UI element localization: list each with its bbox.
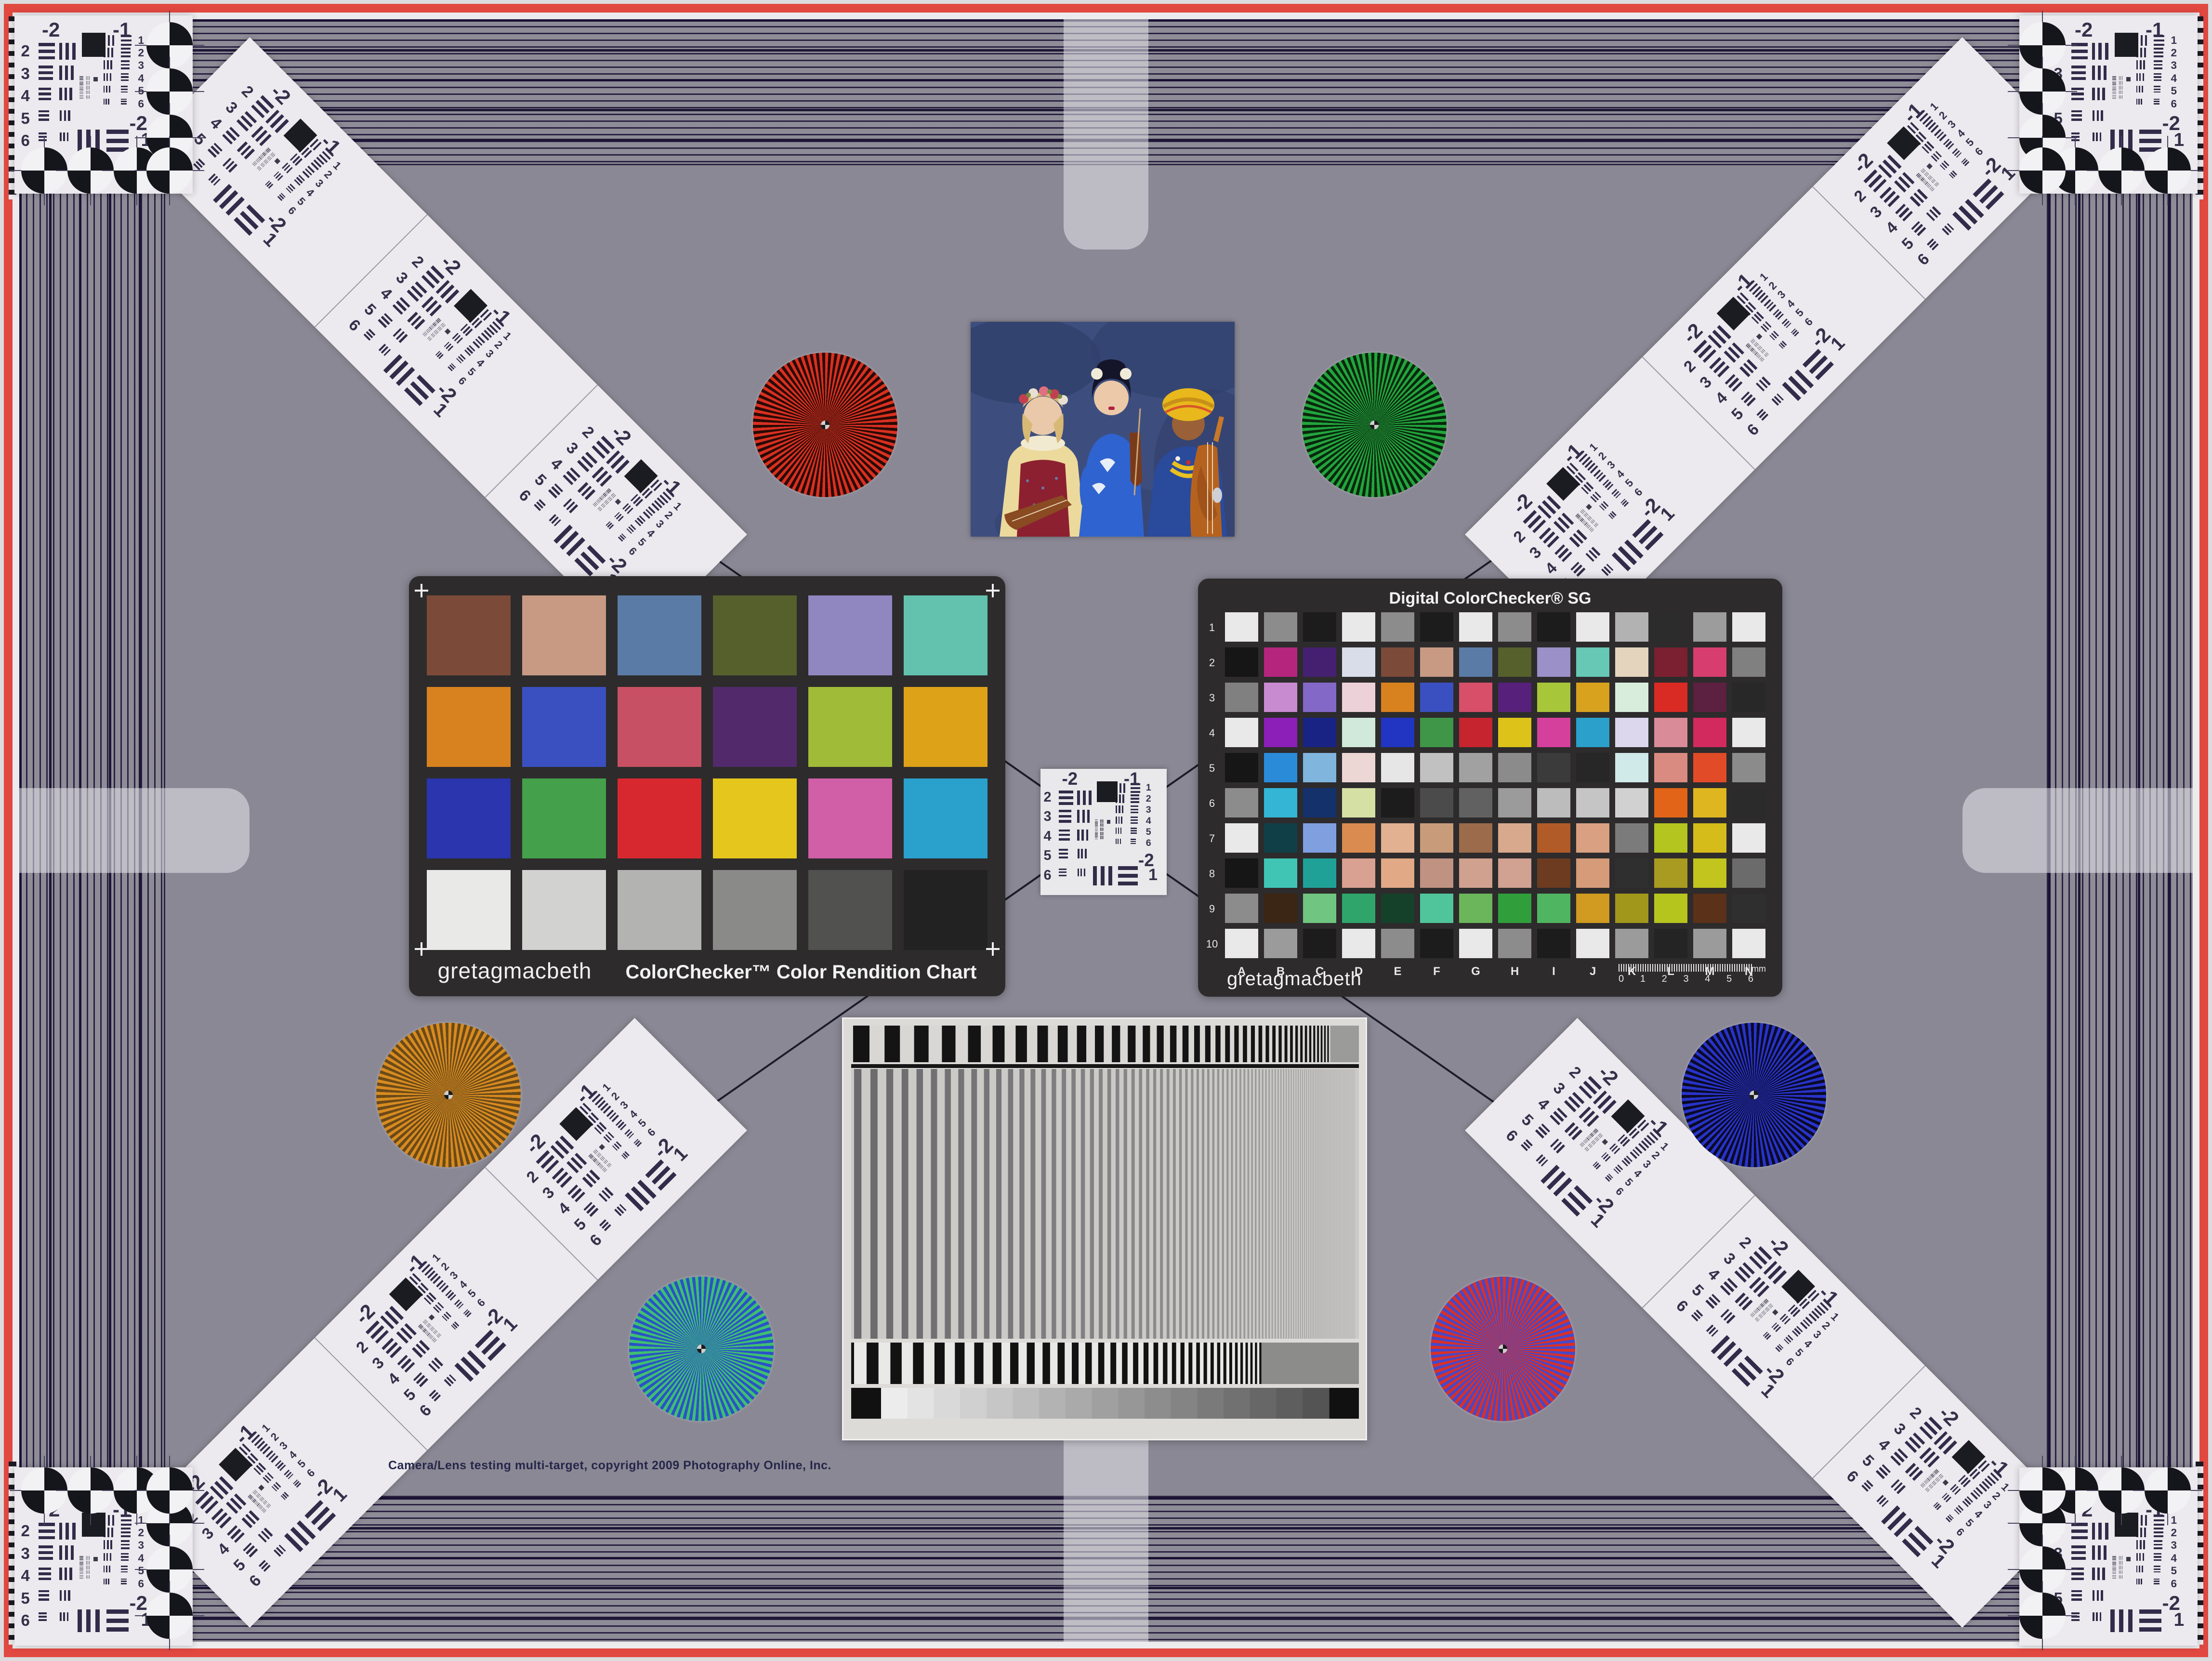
- sg-color-patch: [1420, 612, 1453, 642]
- micro-bar: [2119, 1561, 2120, 1565]
- vertical-bar-group: [271, 1482, 281, 1491]
- bar: [2104, 1545, 2107, 1560]
- micro-bar: [79, 1572, 83, 1573]
- horizontal-bar-group: [2154, 48, 2163, 57]
- bar: [121, 1531, 131, 1533]
- bar: [2154, 67, 2162, 69]
- micro-bar: [1095, 819, 1098, 820]
- vertical-bar-group: [1537, 495, 1561, 519]
- usaf-number: 1: [1659, 1141, 1671, 1153]
- horizontal-bar-group: [211, 1508, 232, 1529]
- bar: [1059, 820, 1072, 822]
- vertical-bar-group: [1950, 1484, 1961, 1495]
- bar: [39, 136, 47, 138]
- bar: [1059, 857, 1068, 858]
- usaf-number: 2: [1990, 1490, 2002, 1502]
- bar: [95, 1609, 100, 1632]
- usaf-number: 4: [2171, 73, 2177, 84]
- sg-color-patch: [1420, 683, 1453, 712]
- bar: [2097, 1590, 2099, 1601]
- micro-bar: [88, 86, 89, 90]
- micro-bar: [2112, 1569, 2116, 1569]
- horizontal-bar-group: [1902, 1526, 1934, 1557]
- bar: [2154, 1515, 2165, 1517]
- bar: [2154, 1519, 2165, 1522]
- bar: [2071, 1590, 2082, 1592]
- sg-color-patch: [1459, 647, 1492, 677]
- sg-ruler-number: 3: [1683, 974, 1688, 985]
- vertical-bar-group: [1116, 839, 1121, 844]
- bar: [1119, 794, 1121, 803]
- horizontal-bar-group: [259, 1560, 271, 1572]
- bar: [121, 76, 129, 78]
- star-hub: [697, 1345, 706, 1353]
- bar: [2145, 35, 2147, 46]
- sg-color-patch: [1537, 894, 1570, 923]
- sg-color-patch: [1732, 683, 1765, 712]
- vertical-bar-group: [1894, 172, 1915, 193]
- sg-ruler-unit: mm: [1751, 964, 1766, 974]
- horizontal-bar-group: [2139, 1609, 2162, 1632]
- bar: [2136, 60, 2138, 69]
- usaf-number: 3: [1697, 373, 1714, 391]
- bar: [2092, 88, 2094, 100]
- bar: [111, 48, 113, 57]
- horizontal-bar-group: [121, 48, 131, 57]
- bar: [39, 56, 55, 60]
- bar: [121, 44, 132, 46]
- bar: [1118, 874, 1138, 878]
- vertical-bar-group: [606, 521, 614, 529]
- sg-color-patch: [1576, 858, 1609, 888]
- usaf-black-square: [1097, 781, 1118, 802]
- bar: [121, 101, 127, 102]
- vertical-bar-group: [1612, 540, 1644, 571]
- bar: [2140, 60, 2142, 69]
- usaf-number: 4: [1542, 559, 1559, 577]
- sg-color-patch: [1420, 894, 1453, 923]
- horizontal-bar-group: [1550, 1107, 1567, 1125]
- bar: [66, 43, 69, 60]
- star-hub: [821, 421, 829, 429]
- micro-bar: [89, 86, 90, 90]
- bar: [1093, 866, 1097, 886]
- horizontal-bar-group: [363, 329, 375, 341]
- navy-star: [1682, 1023, 1826, 1167]
- sg-color-patch: [1342, 858, 1375, 888]
- fiducial-circle: [2145, 1467, 2191, 1514]
- corner-card-pattern: -2-123456123456-21: [2050, 18, 2195, 163]
- usaf-number: 6: [1844, 1467, 1861, 1485]
- micro-bar: [2112, 97, 2116, 98]
- vertical-bar-group: [2136, 1566, 2143, 1572]
- micro-bar: [1100, 836, 1101, 839]
- bar: [121, 1571, 128, 1573]
- micro-bar: [89, 1556, 90, 1560]
- usaf-resolution-pattern: -2-123456123456-21: [17, 1498, 162, 1643]
- usaf-number: 6: [1803, 316, 1815, 328]
- horizontal-bar-group: [1803, 349, 1834, 381]
- usaf-number: 6: [1044, 869, 1052, 883]
- micro-square: [93, 77, 98, 81]
- usaf-resolution-pattern: -2-123456123456-21: [17, 18, 162, 163]
- horizontal-bar-group: [454, 1299, 463, 1309]
- usaf-number: 3: [1551, 1079, 1568, 1096]
- sg-color-patch: [1225, 718, 1258, 747]
- bar: [2071, 114, 2082, 116]
- usaf-number: 3: [21, 66, 30, 81]
- bar: [2154, 99, 2159, 100]
- micro-bar: [79, 1566, 83, 1567]
- bar: [1131, 817, 1137, 818]
- vertical-bar-group: [1536, 1154, 1548, 1166]
- usaf-number: 6: [1914, 250, 1932, 268]
- bar: [1131, 841, 1136, 842]
- horizontal-bar-group: [1911, 221, 1926, 236]
- horizontal-bar-group: [1876, 1464, 1891, 1479]
- horizontal-bar-group: [266, 1450, 278, 1463]
- horizontal-bar-group: [1521, 1139, 1533, 1151]
- sg-color-patch: [1498, 683, 1531, 712]
- vertical-bar-group: [1593, 1090, 1617, 1114]
- bar: [2104, 66, 2107, 80]
- micro-square: [445, 328, 451, 334]
- vertical-bar-group: [1739, 359, 1757, 377]
- micro-bar: [79, 1573, 83, 1574]
- sg-color-patch: [1264, 753, 1297, 782]
- vertical-bar-group: [1590, 491, 1601, 502]
- classic-brand: gretagmacbeth: [438, 958, 592, 984]
- grayscale-step-wedge: [851, 1388, 1359, 1419]
- horizontal-bar-group: [121, 86, 128, 92]
- sg-ruler-number: 5: [1726, 974, 1732, 985]
- sg-color-patch: [1732, 929, 1765, 958]
- micro-bar: [79, 1567, 83, 1568]
- horizontal-bar-group: [2154, 1579, 2159, 1584]
- bar: [121, 1559, 129, 1561]
- bar: [2154, 101, 2159, 102]
- bar: [39, 1594, 49, 1596]
- sg-color-patch: [1654, 858, 1687, 888]
- sg-color-patch: [1420, 823, 1453, 853]
- bar: [1131, 822, 1137, 824]
- bar: [2154, 92, 2160, 93]
- sg-row-label: 9: [1205, 903, 1219, 915]
- micro-bar: [1095, 822, 1098, 822]
- micro-bar: [1095, 833, 1098, 833]
- bar: [2143, 1540, 2145, 1549]
- micro-bar: [2120, 81, 2121, 85]
- bar: [106, 1553, 108, 1561]
- bar: [1122, 794, 1124, 803]
- vertical-bar-group: [210, 1476, 233, 1500]
- bar: [2071, 1594, 2082, 1596]
- micro-bar: [79, 86, 83, 87]
- sg-color-patch: [1576, 753, 1609, 782]
- vertical-bar-group: [1550, 1138, 1565, 1153]
- sg-row-label: 5: [1205, 762, 1219, 775]
- bar: [1116, 805, 1117, 813]
- sg-color-patch: [1576, 647, 1609, 677]
- frequency-sweep-chart: [842, 1017, 1367, 1440]
- bar: [2154, 1559, 2161, 1561]
- usaf-number: 4: [1146, 817, 1151, 826]
- bar: [65, 1568, 67, 1580]
- horizontal-bar-group: [2071, 110, 2082, 121]
- bar: [1120, 839, 1121, 844]
- micro-bar: [86, 76, 87, 80]
- horizontal-bar-group: [1620, 499, 1629, 507]
- vertical-bar-group: [598, 1187, 613, 1202]
- usaf-number: 3: [2171, 1540, 2177, 1551]
- bar: [2092, 1545, 2095, 1560]
- horizontal-bar-group: [1535, 1123, 1550, 1138]
- usaf-number: 6: [2171, 99, 2177, 110]
- sg-color-patch: [1498, 858, 1531, 888]
- horizontal-bar-group: [1131, 794, 1139, 803]
- bar: [121, 1528, 131, 1529]
- micro-bar: [2119, 1575, 2120, 1579]
- bar: [71, 66, 74, 80]
- usaf-number: 2: [2171, 48, 2177, 59]
- usaf-number: 5: [1793, 1347, 1805, 1359]
- usaf-number: 1: [1146, 783, 1151, 793]
- micro-bar: [1102, 828, 1102, 831]
- horizontal-bar-group: [121, 1579, 127, 1584]
- bar: [2154, 1566, 2160, 1567]
- horizontal-bar-group: [121, 1515, 132, 1526]
- divider-line: [851, 1064, 1359, 1068]
- usaf-label-bottom-one: 1: [430, 400, 451, 421]
- micro-bar: [2112, 1561, 2116, 1562]
- bar: [1116, 839, 1117, 844]
- micro-bar: [86, 1570, 87, 1574]
- micro-square: [2126, 77, 2131, 81]
- micro-bar: [79, 1556, 83, 1557]
- sg-color-patch: [1381, 647, 1414, 677]
- usaf-label-bottom-one: 1: [1998, 163, 2018, 184]
- vertical-bar-group: [1601, 1152, 1610, 1161]
- horizontal-bar-group: [121, 99, 127, 105]
- horizontal-bar-group: [1943, 139, 1954, 150]
- vertical-bar-group: [396, 1323, 417, 1344]
- micro-bar: [1103, 836, 1104, 839]
- micro-bar: [79, 1575, 83, 1576]
- micro-bar: [2112, 1577, 2116, 1578]
- vertical-bar-group: [1941, 1493, 1951, 1503]
- bar: [2144, 48, 2146, 57]
- usaf-number: 3: [223, 98, 240, 116]
- color-patch: [904, 870, 987, 950]
- horizontal-bar-group: [456, 354, 465, 363]
- horizontal-bar-group: [1961, 158, 1970, 167]
- bar: [64, 1590, 66, 1601]
- vertical-bar-group: [594, 1122, 606, 1134]
- bar: [2097, 1568, 2100, 1580]
- micro-bar: [2112, 1578, 2116, 1579]
- sg-color-patch: [1381, 858, 1414, 888]
- horizontal-bar-group: [606, 1110, 619, 1122]
- sg-color-patch: [1420, 753, 1453, 782]
- horizontal-bar-group: [563, 467, 580, 485]
- sg-column-label: H: [1498, 965, 1531, 978]
- sg-color-patch: [1615, 718, 1648, 747]
- vertical-bar-group: [1942, 223, 1954, 235]
- sg-row-label: 10: [1205, 938, 1219, 950]
- sg-color-patch: [1576, 823, 1609, 853]
- sg-column-label: I: [1537, 965, 1570, 978]
- bar: [2154, 1579, 2159, 1580]
- micro-bar: [88, 76, 89, 80]
- sg-color-patch: [1693, 683, 1726, 712]
- bar: [2154, 86, 2160, 87]
- micro-bar: [2112, 1556, 2116, 1557]
- vertical-bar-group: [2110, 1609, 2133, 1632]
- bar: [1119, 805, 1120, 813]
- horizontal-bar-group: [121, 1553, 129, 1561]
- vertical-bar-group: [104, 1553, 111, 1561]
- usaf-number: 4: [1712, 389, 1730, 407]
- micro-bar: [2120, 1566, 2121, 1569]
- vertical-bar-group: [1779, 1313, 1791, 1324]
- bar: [2136, 1540, 2138, 1549]
- horizontal-bar-group: [1895, 204, 1913, 222]
- green-star: [1302, 353, 1447, 497]
- vertical-bar-group: [1599, 501, 1608, 511]
- micro-bar: [86, 86, 87, 90]
- sg-color-patch: [1537, 683, 1570, 712]
- fiducial-circle: [2019, 1467, 2066, 1514]
- bar: [2154, 52, 2163, 53]
- sg-color-patch: [1693, 929, 1726, 958]
- bar: [39, 98, 51, 100]
- horizontal-bar-group: [106, 130, 129, 152]
- vertical-bar-group: [1077, 810, 1090, 823]
- sg-color-patch: [1303, 753, 1336, 782]
- sg-color-patch: [1342, 929, 1375, 958]
- usaf-number: 1: [138, 35, 145, 46]
- sg-ruler-numbers: 0123456: [1619, 974, 1753, 985]
- bottom-bar-sweep: [851, 1343, 1359, 1384]
- sg-color-patch: [1732, 823, 1765, 853]
- bar: [39, 114, 49, 116]
- bar: [1131, 819, 1137, 821]
- horizontal-bar-group: [121, 1528, 131, 1537]
- vertical-bar-group: [1881, 1505, 1913, 1537]
- top-bar-sweep: [851, 1026, 1359, 1062]
- horizontal-bar-group: [1059, 810, 1072, 823]
- sg-ruler-number: 1: [1640, 974, 1646, 985]
- micro-bar: [2112, 89, 2116, 90]
- usaf-number: 3: [394, 269, 411, 286]
- usaf-number: 5: [362, 301, 379, 318]
- bar: [2154, 1581, 2159, 1582]
- horizontal-bar-group: [643, 506, 655, 519]
- vertical-bar-group: [1934, 1431, 1957, 1455]
- vertical-bar-group: [1618, 1134, 1630, 1147]
- usaf-resolution-pattern: -2-123456123456-21: [1040, 769, 1167, 895]
- sg-color-patch: [1264, 612, 1297, 642]
- color-patch: [522, 595, 606, 675]
- usaf-number: 5: [1519, 1111, 1537, 1128]
- vertical-bar-group: [1931, 151, 1942, 162]
- vertical-bar-group: [444, 342, 453, 351]
- bar: [1059, 810, 1072, 812]
- micro-square: [274, 158, 280, 164]
- bar: [121, 40, 132, 42]
- usaf-number: 5: [21, 1590, 30, 1606]
- bar: [2136, 86, 2138, 92]
- bar: [2139, 1609, 2162, 1614]
- bar: [39, 1619, 47, 1621]
- horizontal-bar-group: [534, 499, 546, 511]
- sg-color-patch: [1225, 753, 1258, 782]
- bar: [1082, 810, 1085, 823]
- micro-bar: [79, 95, 83, 96]
- bar: [1131, 812, 1138, 813]
- micro-bar: [79, 1564, 83, 1565]
- sg-color-patch: [1732, 647, 1765, 677]
- usaf-number: 2: [1146, 794, 1151, 804]
- bar: [1123, 783, 1125, 793]
- horizontal-bar-group: [39, 66, 53, 80]
- bar: [2154, 73, 2161, 75]
- sg-color-patch: [1615, 788, 1648, 817]
- usaf-number: 5: [295, 196, 307, 208]
- bar: [2154, 40, 2165, 42]
- micro-bar: [2112, 79, 2116, 80]
- sg-color-patch: [1342, 647, 1375, 677]
- bar: [1131, 791, 1140, 793]
- micro-bar: [2122, 95, 2123, 99]
- micro-bar: [79, 78, 83, 79]
- horizontal-bar-group: [413, 1372, 428, 1387]
- vertical-bar-group: [104, 99, 109, 105]
- usaf-number: 6: [246, 1572, 263, 1589]
- bar: [2071, 1545, 2086, 1548]
- micro-bar: [2112, 81, 2116, 82]
- bar: [121, 73, 129, 75]
- bar: [107, 48, 109, 57]
- sg-color-patch: [1615, 858, 1648, 888]
- color-patch: [904, 595, 987, 675]
- bar: [2141, 99, 2142, 105]
- usaf-number: 1: [1999, 1481, 2011, 1493]
- micro-bar: [2120, 86, 2121, 90]
- sg-color-patch: [1381, 894, 1414, 923]
- horizontal-bar-group: [1792, 1326, 1803, 1337]
- bar: [1131, 843, 1136, 844]
- bar: [2100, 1612, 2102, 1621]
- vertical-bar-group: [208, 173, 220, 185]
- usaf-number: 1: [501, 330, 513, 342]
- bar: [1077, 830, 1080, 841]
- usaf-number: 3: [21, 1545, 30, 1561]
- usaf-number: 6: [286, 205, 298, 217]
- corner-resolution-card: -2-123456123456-21: [2019, 15, 2198, 194]
- bar: [104, 1540, 105, 1549]
- bar: [2154, 89, 2160, 90]
- bar: [1059, 838, 1070, 841]
- micro-bar: [79, 1562, 83, 1563]
- usaf-number: 5: [532, 471, 550, 488]
- bar: [39, 1578, 51, 1580]
- bar: [1077, 791, 1080, 805]
- horizontal-bar-group: [1764, 299, 1776, 312]
- micro-bar: [2112, 1572, 2116, 1573]
- bar: [39, 110, 49, 112]
- vertical-bar-group: [104, 1540, 112, 1549]
